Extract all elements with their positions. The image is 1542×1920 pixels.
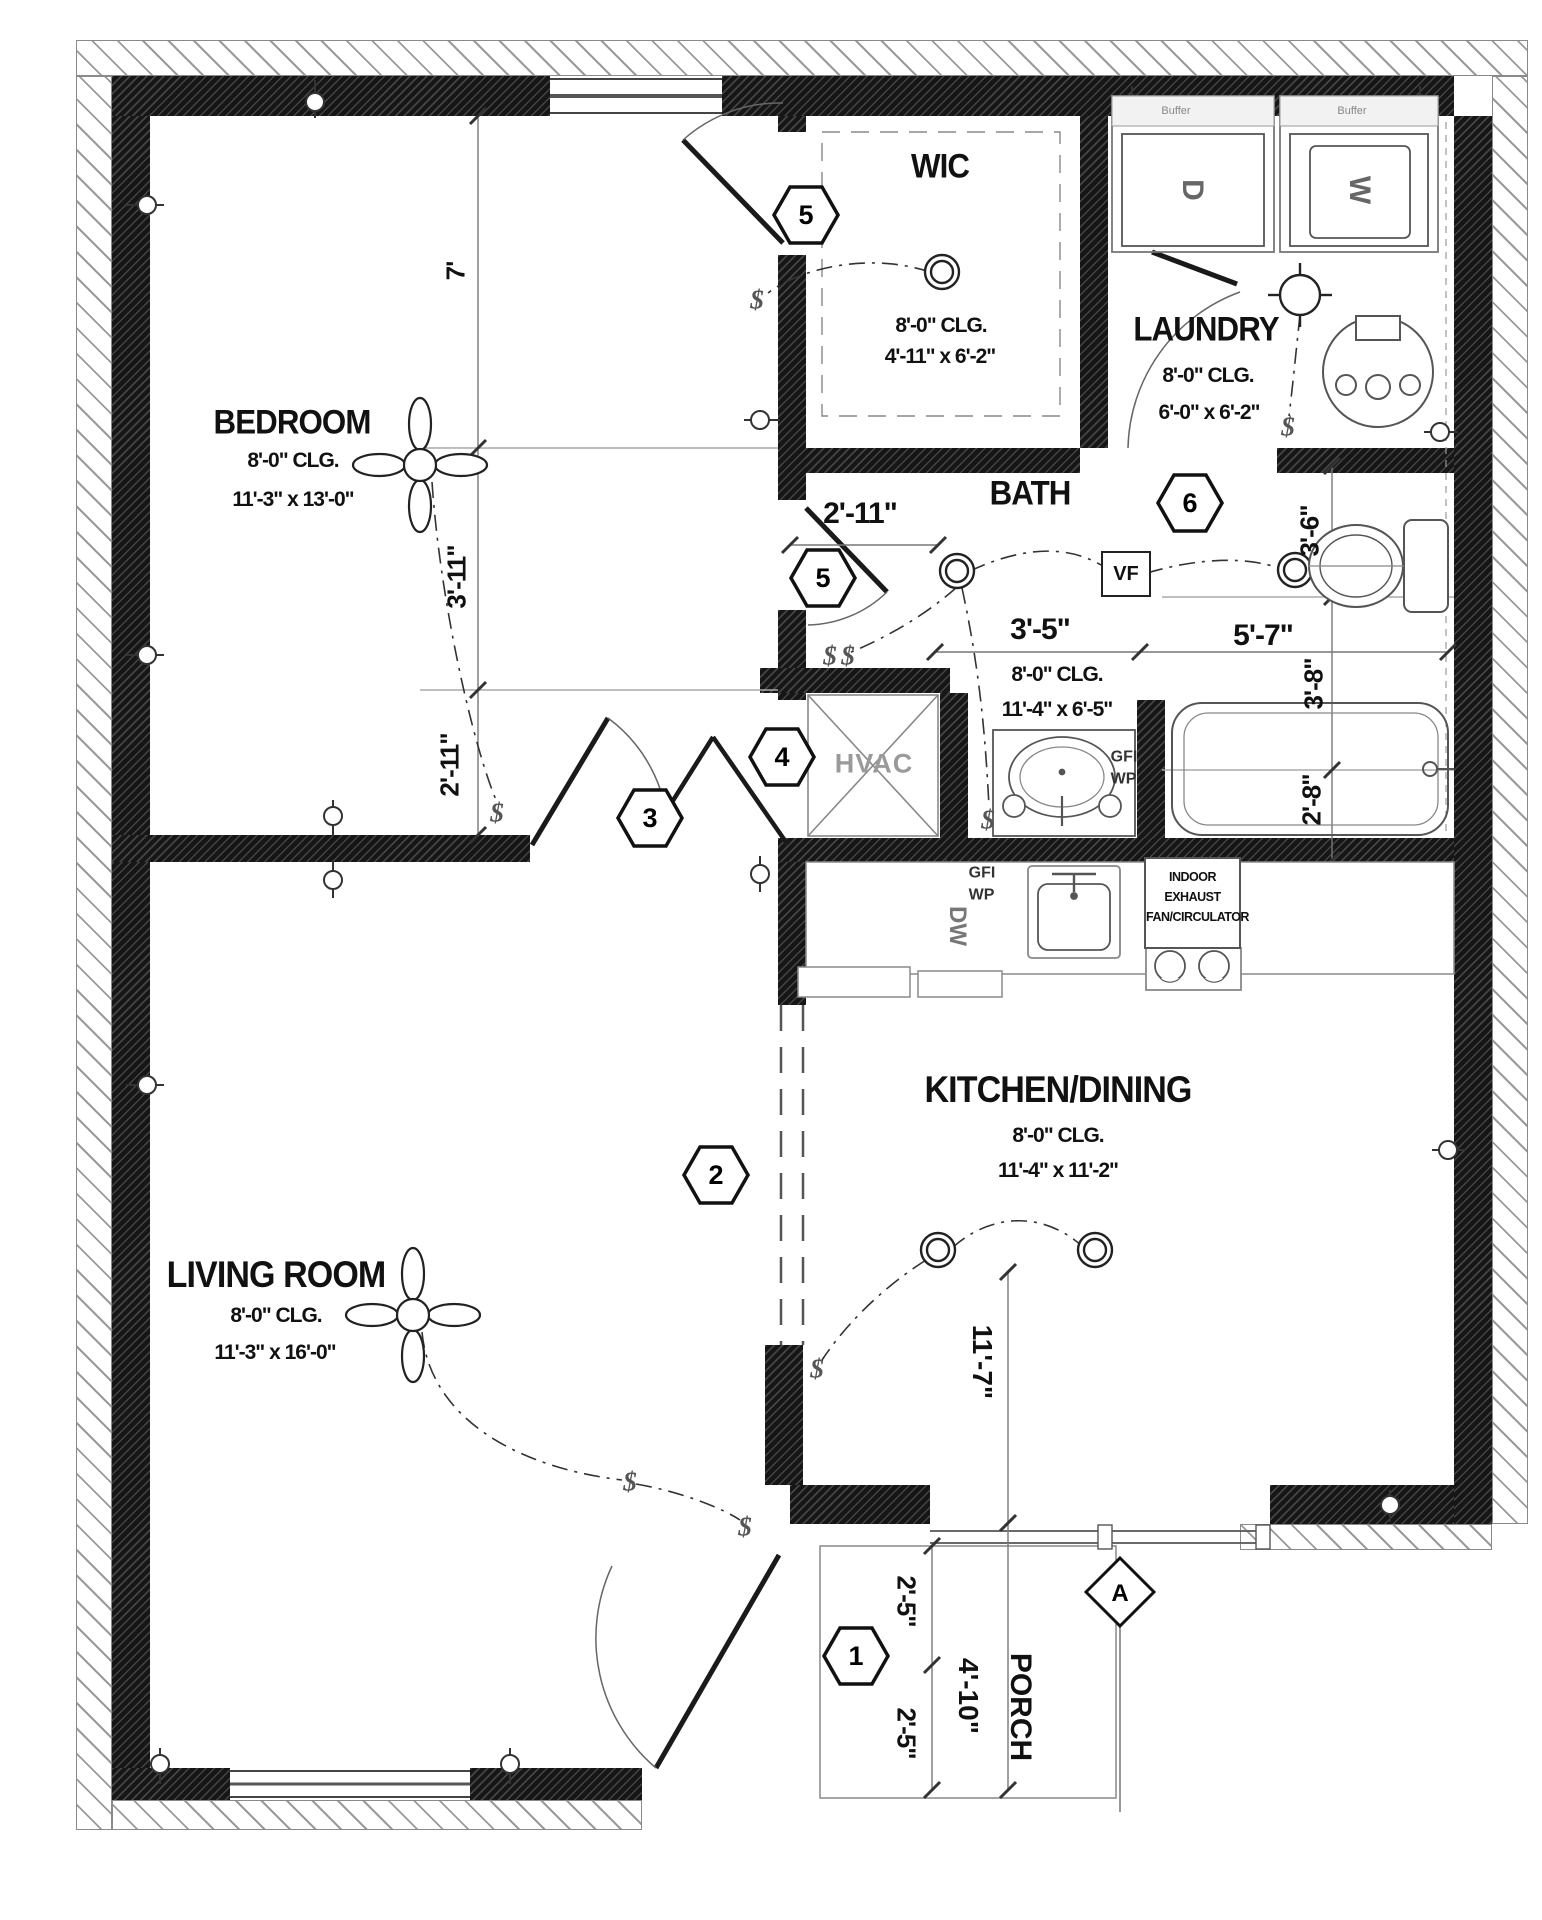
dim-bedroom-2-11: 2'-11" (435, 733, 466, 796)
ceiling-fan-bedroom (353, 398, 487, 532)
range-burners (1146, 948, 1241, 990)
buffer-label-dryer: Buffer (1161, 105, 1190, 117)
svg-text:6: 6 (1182, 488, 1197, 518)
wic-size: 4'-11" x 6'-2" (885, 345, 995, 369)
plan-linework: 5 5 6 4 3 2 1 A (0, 0, 1542, 1920)
kitchen-ceiling: 8'-0" CLG. (1012, 1124, 1103, 1148)
switch-vanity: $ (981, 805, 995, 836)
porch-label: PORCH (1003, 1653, 1037, 1761)
svg-text:3: 3 (642, 803, 657, 833)
switch-kitchen: $ (810, 1354, 824, 1385)
dim-porch-2-5-a: 2'-5" (891, 1575, 922, 1626)
living-size: 11'-3" x 16'-0" (214, 1341, 335, 1365)
gfi-kitchen: GFIWP (969, 862, 996, 905)
dishwasher-label: DW (943, 906, 971, 946)
svg-text:5: 5 (815, 563, 830, 593)
floor-plan: 5 5 6 4 3 2 1 A BEDROOM 8'-0" CLG. 11'-3… (0, 0, 1542, 1920)
gfi-bath: GFIWP (1111, 746, 1138, 789)
kitchen-counter (798, 862, 1454, 997)
bedroom-label: BEDROOM (214, 404, 371, 443)
svg-text:5: 5 (798, 200, 813, 230)
water-heater (1323, 316, 1433, 427)
cased-opening-dashes (781, 1005, 803, 1345)
switch-wic: $ (750, 285, 764, 316)
dim-porch-2-5-b: 2'-5" (891, 1707, 922, 1758)
dim-right-2-8: 2'-8" (1297, 774, 1328, 825)
svg-text:2: 2 (708, 1160, 723, 1190)
kitchen-size: 11'-4" x 11'-2" (998, 1159, 1118, 1183)
dim-kitchen-11-7: 11'-7" (966, 1325, 998, 1399)
buffer-label-washer: Buffer (1337, 105, 1366, 117)
hvac-label: HVAC (835, 749, 914, 780)
vent-fan-box: VF (1101, 551, 1151, 597)
switch-bedroom: $ (490, 798, 504, 829)
dim-bedroom-3-11: 3'-11" (442, 545, 473, 608)
switch-laundry: $ (1281, 412, 1295, 443)
laundry-label: LAUNDRY (1133, 311, 1278, 350)
laundry-size: 6'-0" x 6'-2" (1159, 401, 1260, 425)
vent-fan-label: VF (1113, 563, 1139, 586)
switch-entry-b: $ (623, 1467, 637, 1498)
door-entry (596, 1555, 779, 1768)
living-ceiling: 8'-0" CLG. (230, 1304, 321, 1328)
bedroom-ceiling: 8'-0" CLG. (247, 449, 338, 473)
dim-porch-4-10: 4'-10" (952, 1658, 984, 1734)
toilet (1308, 520, 1448, 612)
bath-label: BATH (990, 475, 1071, 514)
living-label: LIVING ROOM (167, 1254, 386, 1296)
dim-bath-5-7: 5'-7" (1233, 619, 1293, 653)
switch-bath-a: $ (823, 641, 837, 672)
svg-text:A: A (1111, 1580, 1128, 1607)
wic-label: WIC (911, 148, 969, 187)
switch-entry-a: $ (738, 1512, 752, 1543)
exhaust-line2: FAN/CIRCULATOR (1146, 907, 1239, 927)
kitchen-sink (1028, 866, 1120, 958)
exhaust-fan-box: INDOOR EXHAUST FAN/CIRCULATOR (1144, 857, 1241, 949)
bath-size: 11'-4" x 6'-5" (1002, 698, 1112, 722)
wic-ceiling: 8'-0" CLG. (895, 314, 986, 338)
door-wic (683, 103, 783, 243)
exhaust-line1: INDOOR EXHAUST (1146, 867, 1239, 907)
kitchen-label: KITCHEN/DINING (924, 1069, 1191, 1111)
svg-text:4: 4 (774, 742, 789, 772)
switch-bath-b: $ (841, 641, 855, 672)
bath-ceiling: 8'-0" CLG. (1011, 663, 1102, 687)
dim-right-3-6: 3'-6" (1295, 505, 1326, 556)
dryer-label: D (1175, 179, 1209, 201)
dim-bath-3-5: 3'-5" (1010, 613, 1070, 647)
dim-right-3-8: 3'-8" (1299, 658, 1330, 709)
washer-label: W (1342, 176, 1376, 204)
dim-bedroom-7: 7' (441, 262, 472, 281)
svg-text:1: 1 (848, 1641, 863, 1671)
laundry-ceiling: 8'-0" CLG. (1162, 364, 1253, 388)
bedroom-size: 11'-3" x 13'-0" (232, 488, 353, 512)
dim-bath-door-2-11: 2'-11" (823, 497, 897, 531)
